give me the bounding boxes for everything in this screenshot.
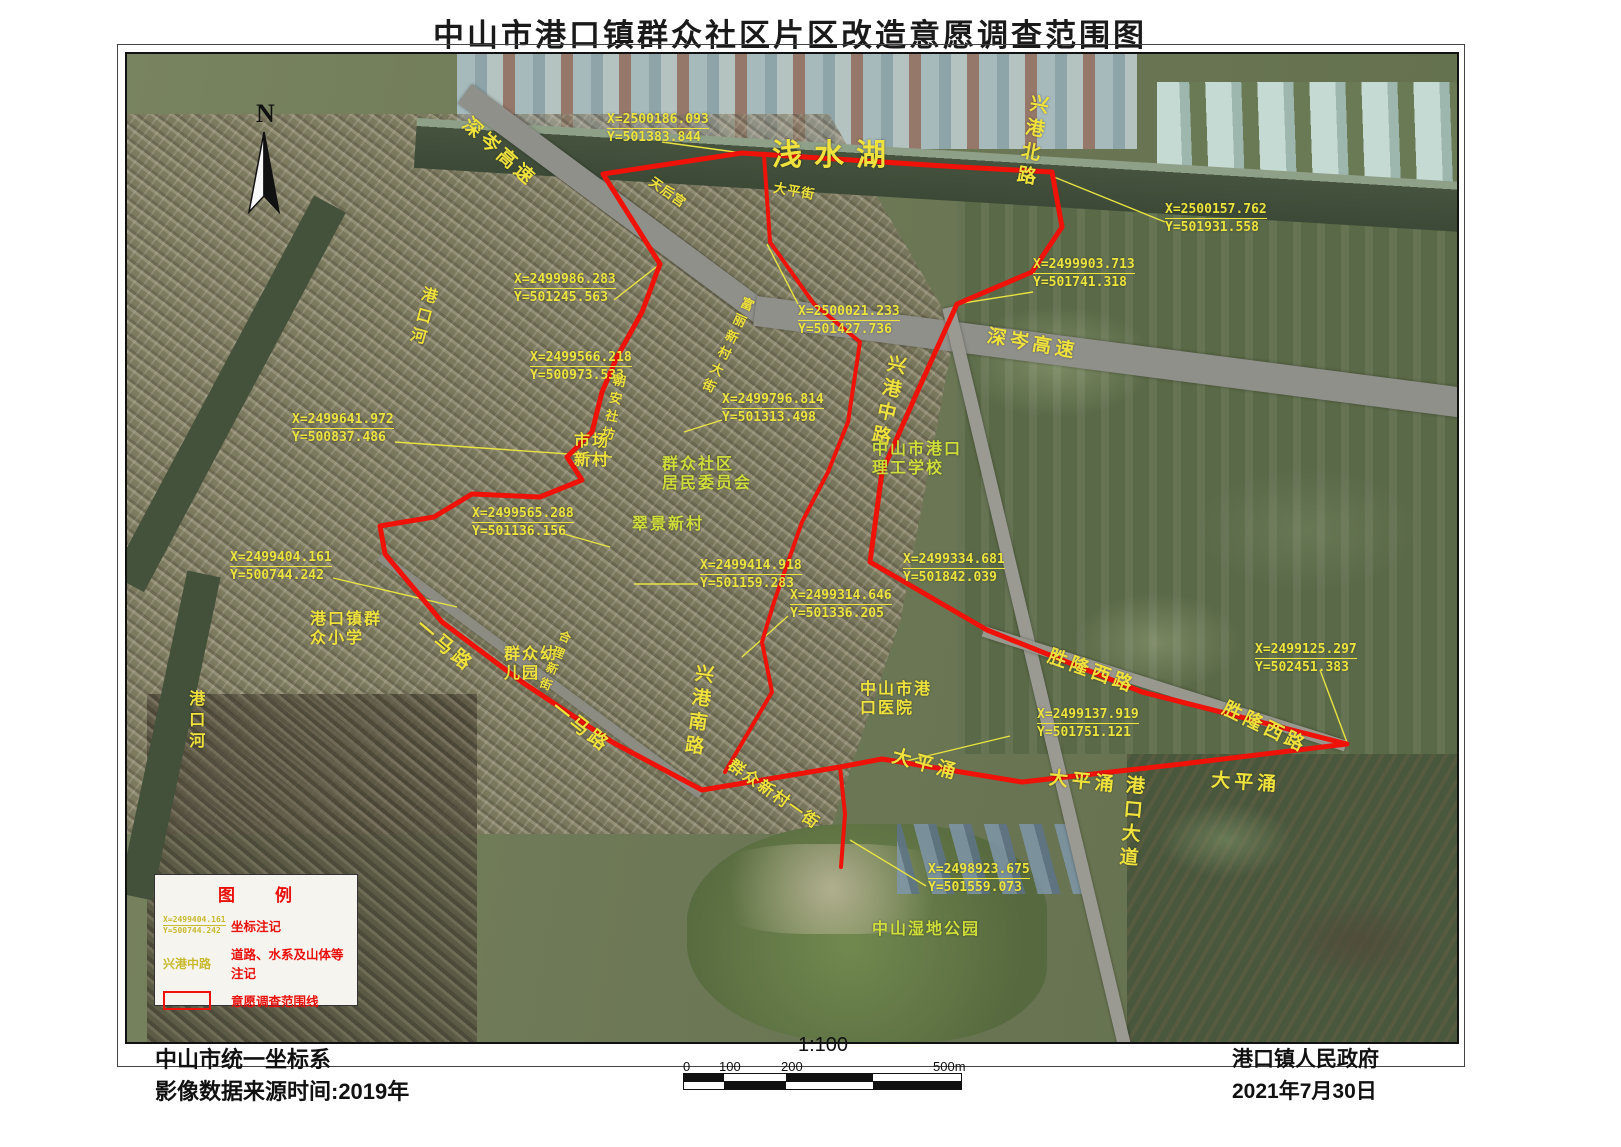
coordinate-system-line: 中山市统一坐标系 bbox=[155, 1044, 409, 1076]
map-label: 翠景新村 bbox=[632, 515, 704, 534]
legend-label-boundary: 意愿调查范围线 bbox=[231, 991, 319, 1010]
scale-segment bbox=[684, 1074, 724, 1081]
scale-tick-labels: 0100200500m bbox=[683, 1057, 963, 1073]
north-arrow-right-half bbox=[264, 132, 279, 212]
coordinate-annotation: X=2499334.681Y=501842.039 bbox=[903, 552, 1005, 585]
coordinate-y: Y=500973.533 bbox=[530, 367, 632, 383]
coordinate-annotation: X=2499641.972Y=500837.486 bbox=[292, 412, 394, 445]
coordinate-annotation: X=2500157.762Y=501931.558 bbox=[1165, 202, 1267, 235]
north-arrow-left-half bbox=[249, 132, 264, 212]
coordinate-annotation: X=2499565.288Y=501136.156 bbox=[472, 506, 574, 539]
map-label: 浅水湖 bbox=[772, 138, 898, 174]
coordinate-annotation: X=2499314.646Y=501336.205 bbox=[790, 588, 892, 621]
legend-title: 图 例 bbox=[163, 881, 349, 906]
scale-segment bbox=[724, 1082, 786, 1089]
legend-label-road: 道路、水系及山体等注记 bbox=[231, 944, 349, 982]
map-canvas[interactable]: N 图 例 X=2499404.161 Y=500744.242 坐标注记 兴港… bbox=[125, 52, 1459, 1044]
coordinate-annotation: X=2500186.093Y=501383.844 bbox=[607, 112, 709, 145]
coordinate-y: Y=501427.736 bbox=[798, 321, 900, 337]
scale-segment bbox=[724, 1074, 786, 1081]
imagery-date-line: 影像数据来源时间:2019年 bbox=[155, 1076, 409, 1108]
coordinate-x: X=2499565.288 bbox=[472, 506, 574, 523]
coordinate-annotation: X=2499566.218Y=500973.533 bbox=[530, 350, 632, 383]
coordinate-x: X=2499314.646 bbox=[790, 588, 892, 605]
coordinate-annotation: X=2499796.814Y=501313.498 bbox=[722, 392, 824, 425]
legend-sample-y: Y=500744.242 bbox=[163, 926, 221, 935]
coordinate-y: Y=500744.242 bbox=[230, 567, 332, 583]
coordinate-x: X=2500186.093 bbox=[607, 112, 709, 129]
coordinate-x: X=2498923.675 bbox=[928, 862, 1030, 879]
coordinate-x: X=2499903.713 bbox=[1033, 257, 1135, 274]
north-arrow: N bbox=[234, 94, 294, 234]
coordinate-annotation: X=2499903.713Y=501741.318 bbox=[1033, 257, 1135, 290]
coordinate-x: X=2499404.161 bbox=[230, 550, 332, 567]
coordinate-x: X=2499986.283 bbox=[514, 272, 616, 289]
coordinate-y: Y=501931.558 bbox=[1165, 219, 1267, 235]
map-label: 港口河 bbox=[185, 690, 204, 753]
scale-bar-row-bottom bbox=[684, 1081, 961, 1089]
coordinate-annotation: X=2499125.297Y=502451.383 bbox=[1255, 642, 1357, 675]
coordinate-annotation: X=2499404.161Y=500744.242 bbox=[230, 550, 332, 583]
publisher-name: 港口镇人民政府 bbox=[1232, 1044, 1379, 1076]
publish-date: 2021年7月30日 bbox=[1232, 1076, 1379, 1108]
legend-label-coordinate: 坐标注记 bbox=[231, 916, 281, 935]
coordinate-y: Y=501136.156 bbox=[472, 523, 574, 539]
legend-symbol-boundary bbox=[163, 991, 231, 1010]
scale-segment bbox=[786, 1074, 873, 1081]
coordinate-y: Y=501741.318 bbox=[1033, 274, 1135, 290]
coordinate-y: Y=501313.498 bbox=[722, 409, 824, 425]
coordinate-x: X=2499334.681 bbox=[903, 552, 1005, 569]
map-label: 群众社区 居民委员会 bbox=[662, 455, 752, 493]
red-rectangle-symbol bbox=[163, 991, 211, 1010]
north-letter: N bbox=[256, 99, 275, 128]
satellite-map: N 图 例 X=2499404.161 Y=500744.242 坐标注记 兴港… bbox=[127, 54, 1457, 1042]
legend-item-coordinate: X=2499404.161 Y=500744.242 坐标注记 bbox=[163, 915, 349, 935]
map-label: 大平涌 bbox=[1210, 770, 1280, 798]
coordinate-x: X=2499137.919 bbox=[1037, 707, 1139, 724]
map-label: 中山市港口 理工学校 bbox=[872, 440, 962, 478]
coordinate-y: Y=500837.486 bbox=[292, 429, 394, 445]
coordinate-x: X=2499125.297 bbox=[1255, 642, 1357, 659]
coordinate-x: X=2500157.762 bbox=[1165, 202, 1267, 219]
coordinate-x: X=2500021.233 bbox=[798, 304, 900, 321]
legend-item-road: 兴港中路 道路、水系及山体等注记 bbox=[163, 944, 349, 982]
scale-tick: 0 bbox=[683, 1059, 690, 1074]
coordinate-annotation: X=2499986.283Y=501245.563 bbox=[514, 272, 616, 305]
scale-tick: 100 bbox=[719, 1059, 741, 1074]
coordinate-x: X=2499641.972 bbox=[292, 412, 394, 429]
scale-bar bbox=[683, 1073, 962, 1090]
coordinate-annotation: X=2498923.675Y=501559.073 bbox=[928, 862, 1030, 895]
scale-tick: 500m bbox=[933, 1059, 966, 1074]
coordinate-y: Y=501751.121 bbox=[1037, 724, 1139, 740]
scale-bar-group: 1:100 0100200500m bbox=[683, 1034, 963, 1090]
scale-bar-row-top bbox=[684, 1074, 961, 1081]
terrain-wetland-southeast bbox=[1127, 754, 1457, 1042]
coordinate-y: Y=501842.039 bbox=[903, 569, 1005, 585]
coordinate-y: Y=501245.563 bbox=[514, 289, 616, 305]
coordinate-system-note: 中山市统一坐标系 影像数据来源时间:2019年 bbox=[155, 1044, 409, 1108]
coordinate-y: Y=501336.205 bbox=[790, 605, 892, 621]
coordinate-annotation: X=2500021.233Y=501427.736 bbox=[798, 304, 900, 337]
map-label: 中山市港 口医院 bbox=[860, 680, 932, 718]
coordinate-y: Y=501383.844 bbox=[607, 129, 709, 145]
scale-segment bbox=[873, 1074, 961, 1081]
map-label: 中山湿地公园 bbox=[872, 920, 980, 939]
coordinate-x: X=2499796.814 bbox=[722, 392, 824, 409]
scale-segment bbox=[873, 1082, 961, 1089]
coordinate-x: X=2499566.218 bbox=[530, 350, 632, 367]
legend: 图 例 X=2499404.161 Y=500744.242 坐标注记 兴港中路… bbox=[154, 874, 358, 1006]
scale-segment bbox=[786, 1082, 873, 1089]
coordinate-annotation: X=2499137.919Y=501751.121 bbox=[1037, 707, 1139, 740]
coordinate-annotation: X=2499414.918Y=501159.283 bbox=[700, 558, 802, 591]
scale-ratio: 1:100 bbox=[683, 1034, 963, 1057]
coordinate-y: Y=501559.073 bbox=[928, 879, 1030, 895]
legend-sample-x: X=2499404.161 bbox=[163, 915, 226, 926]
legend-item-survey-boundary: 意愿调查范围线 bbox=[163, 991, 349, 1010]
legend-symbol-coordinate: X=2499404.161 Y=500744.242 bbox=[163, 915, 231, 935]
scale-segment bbox=[684, 1082, 724, 1089]
coordinate-x: X=2499414.918 bbox=[700, 558, 802, 575]
map-label: 港口镇群 众小学 bbox=[310, 610, 382, 648]
coordinate-y: Y=501159.283 bbox=[700, 575, 802, 591]
coordinate-y: Y=502451.383 bbox=[1255, 659, 1357, 675]
publisher-note: 港口镇人民政府 2021年7月30日 bbox=[1232, 1044, 1379, 1107]
legend-symbol-road: 兴港中路 bbox=[163, 955, 231, 972]
scale-tick: 200 bbox=[781, 1059, 803, 1074]
